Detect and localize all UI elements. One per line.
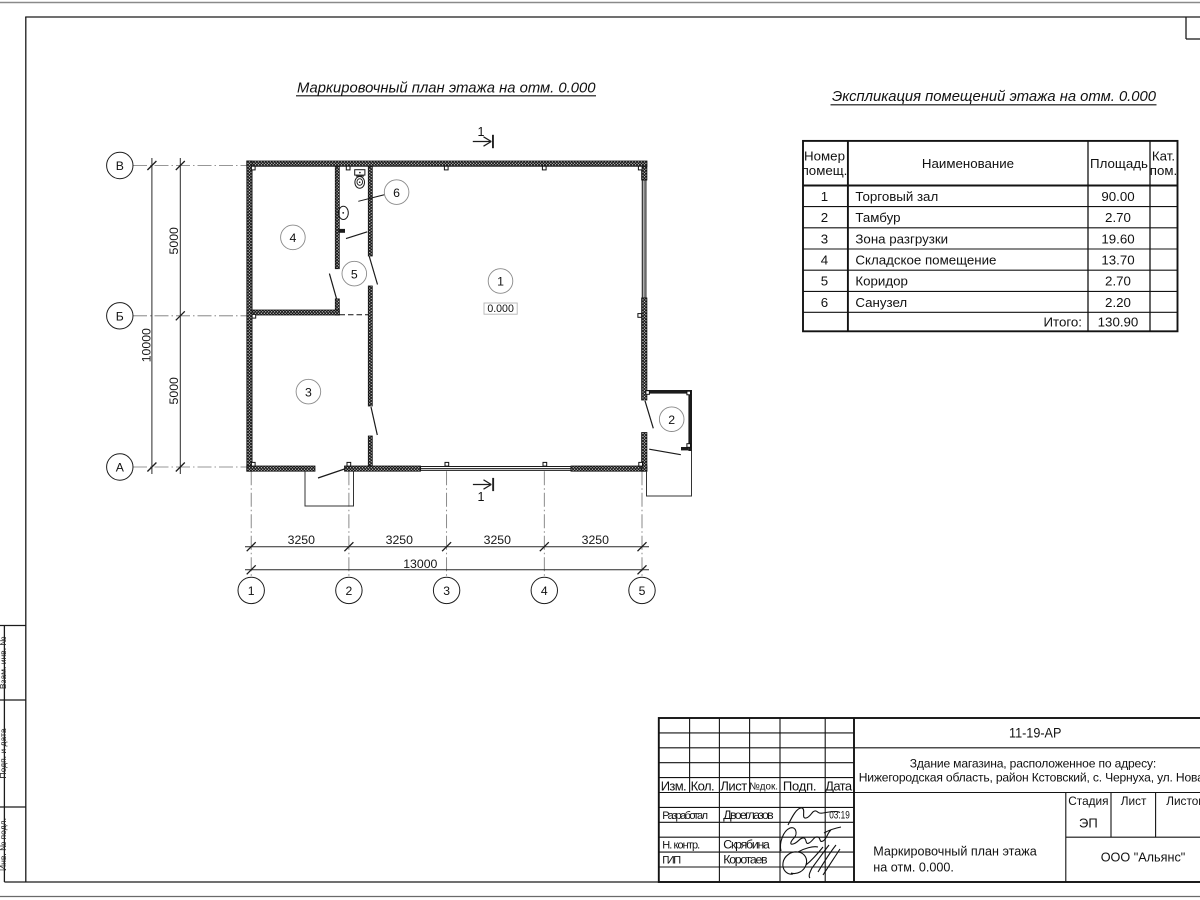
svg-text:19.60: 19.60 [1101, 231, 1134, 246]
svg-text:4: 4 [541, 584, 548, 598]
svg-text:Наименование: Наименование [922, 156, 1014, 171]
svg-text:Б: Б [116, 309, 124, 323]
svg-text:Маркировочный план этажа на от: Маркировочный план этажа на отм. 0.000 [297, 81, 596, 97]
svg-text:В: В [116, 159, 124, 173]
svg-text:Стадия: Стадия [1068, 794, 1108, 808]
svg-text:1: 1 [478, 125, 485, 139]
svg-text:3: 3 [305, 385, 312, 399]
svg-text:2.20: 2.20 [1105, 295, 1131, 310]
svg-text:Итого:: Итого: [1043, 315, 1082, 330]
svg-text:11-19-АР: 11-19-АР [1009, 726, 1061, 741]
svg-text:13000: 13000 [403, 557, 437, 571]
svg-text:2: 2 [668, 413, 675, 427]
svg-text:Номер: Номер [804, 149, 845, 164]
svg-text:помещ.: помещ. [802, 163, 848, 178]
svg-text:ООО "Альянс": ООО "Альянс" [1101, 850, 1186, 865]
svg-text:3: 3 [443, 584, 450, 598]
svg-text:2.70: 2.70 [1105, 274, 1131, 289]
svg-text:4: 4 [289, 231, 296, 245]
svg-text:Коротаев: Коротаев [723, 853, 767, 867]
svg-text:3250: 3250 [582, 533, 610, 547]
svg-text:Разработал: Разработал [662, 810, 708, 822]
svg-text:1: 1 [821, 189, 828, 204]
svg-text:3250: 3250 [484, 533, 512, 547]
svg-text:90.00: 90.00 [1101, 189, 1134, 204]
svg-text:Лист: Лист [1121, 794, 1147, 808]
svg-text:пом.: пом. [1150, 163, 1177, 178]
svg-text:Маркировочный план этажа: Маркировочный план этажа [873, 845, 1036, 859]
svg-text:130.90: 130.90 [1098, 315, 1139, 330]
svg-text:Санузел: Санузел [855, 295, 907, 310]
svg-text:на отм. 0.000.: на отм. 0.000. [873, 860, 954, 874]
svg-text:А: А [116, 461, 125, 475]
svg-text:5000: 5000 [167, 377, 181, 405]
svg-text:Изм.: Изм. [661, 778, 687, 793]
svg-text:4: 4 [821, 253, 828, 268]
svg-text:3250: 3250 [288, 533, 316, 547]
svg-text:Зона разгрузки: Зона разгрузки [855, 231, 948, 246]
svg-text:ГИП: ГИП [662, 855, 681, 867]
svg-text:13.70: 13.70 [1101, 253, 1134, 268]
svg-text:5: 5 [639, 584, 646, 598]
svg-text:Н. контр.: Н. контр. [662, 840, 700, 852]
svg-text:2: 2 [821, 210, 828, 225]
svg-text:Инв. № подл.: Инв. № подл. [0, 818, 8, 871]
svg-text:Листов: Листов [1166, 794, 1200, 808]
svg-text:1: 1 [497, 275, 504, 289]
svg-text:5000: 5000 [167, 227, 181, 255]
svg-text:1: 1 [248, 584, 255, 598]
svg-text:0.000: 0.000 [487, 303, 514, 315]
svg-text:Коридор: Коридор [855, 274, 908, 289]
svg-text:Экспликация помещений этажа на: Экспликация помещений этажа на отм. 0.00… [832, 89, 1157, 105]
svg-text:Кол.: Кол. [691, 778, 715, 793]
svg-text:Складское помещение: Складское помещение [855, 253, 996, 268]
svg-text:3: 3 [821, 231, 828, 246]
svg-text:Подп. и дата: Подп. и дата [0, 728, 8, 778]
svg-text:Кат.: Кат. [1152, 149, 1175, 164]
svg-text:Нижегородская область, район К: Нижегородская область, район Кстовский, … [859, 770, 1200, 784]
svg-text:5: 5 [351, 267, 358, 281]
svg-text:ЭП: ЭП [1079, 815, 1098, 830]
svg-text:3250: 3250 [386, 533, 414, 547]
svg-text:Тамбур: Тамбур [855, 210, 900, 225]
svg-text:5: 5 [821, 274, 828, 289]
svg-text:Площадь: Площадь [1090, 156, 1148, 171]
svg-text:Здание магазина, расположенное: Здание магазина, расположенное по адресу… [910, 756, 1156, 770]
svg-text:6: 6 [393, 186, 400, 200]
svg-text:1: 1 [478, 490, 485, 504]
svg-text:10000: 10000 [139, 328, 153, 362]
svg-text:Подп.: Подп. [783, 778, 817, 793]
svg-text:№док.: №док. [749, 781, 778, 792]
svg-text:6: 6 [821, 295, 828, 310]
svg-text:Двоеглазов: Двоеглазов [723, 808, 773, 822]
svg-text:2: 2 [346, 584, 353, 598]
svg-text:Торговый зал: Торговый зал [855, 189, 938, 204]
svg-text:Скрябина: Скрябина [723, 838, 770, 852]
svg-text:Дата: Дата [825, 778, 853, 793]
svg-text:Лист: Лист [720, 778, 747, 793]
svg-text:Взам. инв. №: Взам. инв. № [0, 636, 8, 689]
svg-text:2.70: 2.70 [1105, 210, 1131, 225]
